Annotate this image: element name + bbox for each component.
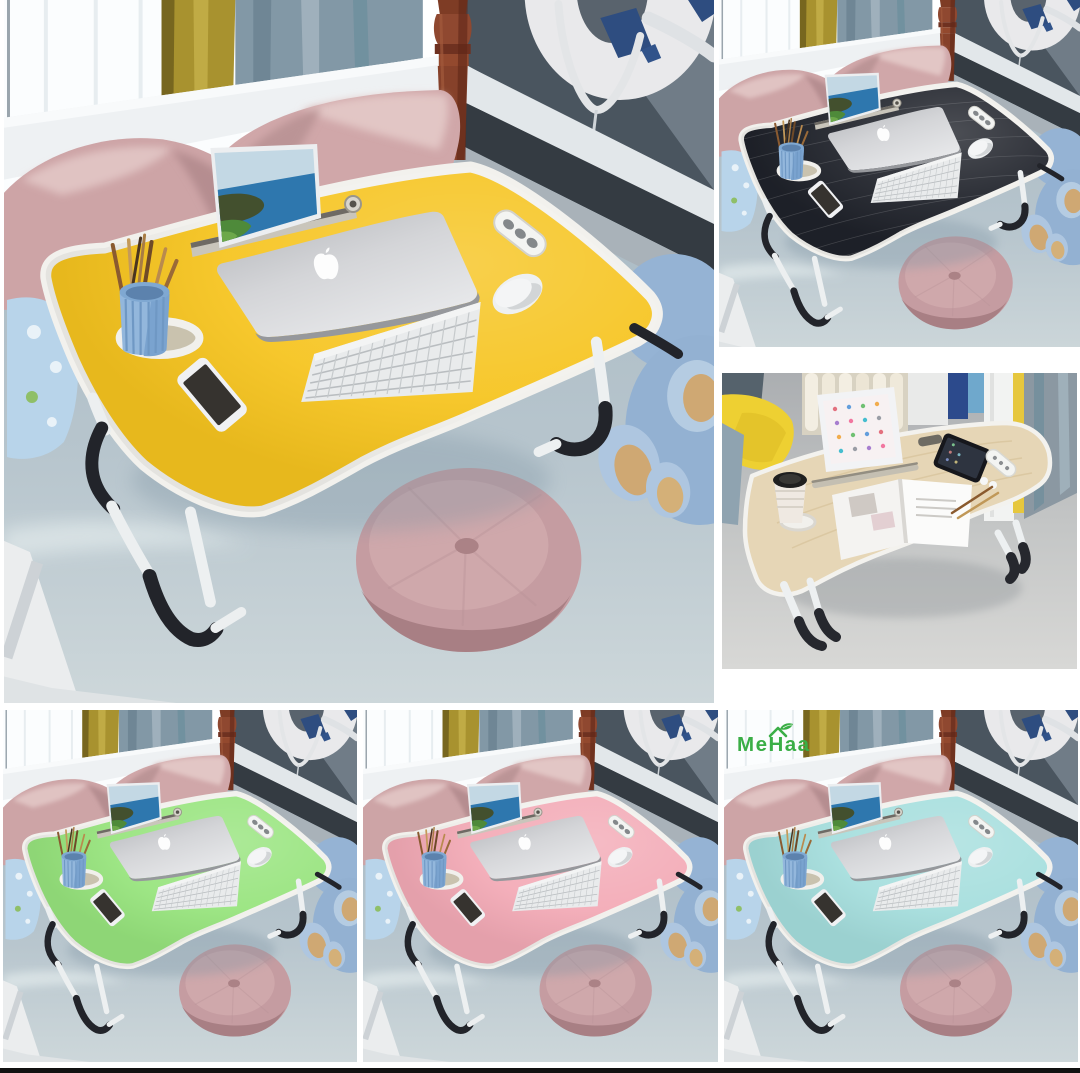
svg-text:MeHaa: MeHaa [737,733,811,756]
